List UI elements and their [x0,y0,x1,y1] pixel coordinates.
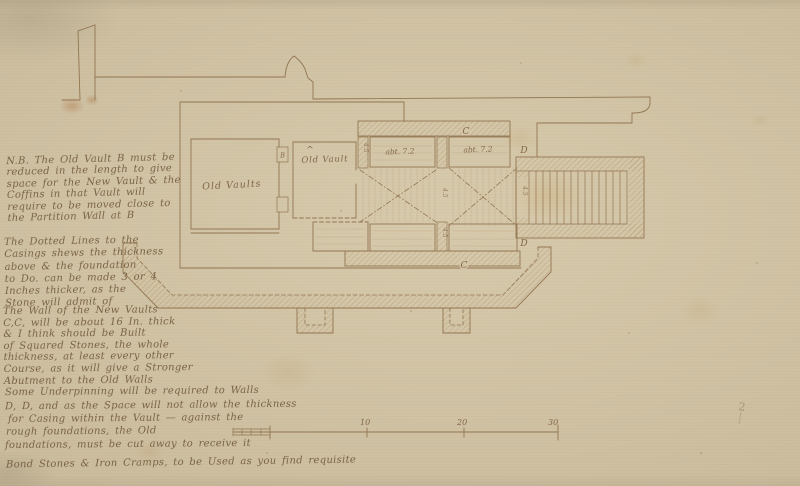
reference-letter-d-bottom: D [519,239,527,249]
note-new-wall: The Wall of the New Vaults C,C, will be … [3,304,193,387]
note-dotted-lines: The Dotted Lines to the Casings shews th… [4,234,164,311]
scale-tick-30: 30 [548,418,558,427]
scale-tick-20: 20 [456,418,467,427]
scale-bar [233,425,558,440]
note-line: Course, as it will give a Stronger [4,362,193,376]
bay-label-right: abt. 7.2 [463,144,493,154]
outer-wall-outline [62,25,650,123]
scale-tick-10: 10 [360,418,370,427]
note-nb: N.B. The Old Vault B must be reduced in … [6,152,182,225]
note-underpinning-line1: Some Underpinning will be required to Wa… [5,385,259,398]
note-underpinning-line4: rough foundations, the Old [6,425,157,437]
caret-mark: ^ [306,146,314,156]
note-underpinning-line3: for Casing within the Vault — against th… [8,412,244,425]
svg-text:2: 2 [738,400,747,414]
pencil-mark: 2 [738,400,747,424]
reference-letter-b: B [279,152,285,160]
dimension-mark-pier-center: 4.5 [441,187,448,198]
buttress-right [443,308,470,333]
new-vault-bays [316,121,520,266]
room-label-old-vaults: Old Vaults [202,178,262,192]
dimension-mark-pier-center-lower: 4.5 [441,227,448,238]
staircase-block [516,123,644,238]
stair-treads [536,171,620,224]
dimension-mark-pier-left: 4.5 [362,142,369,153]
reference-letter-d-top: D [519,146,527,156]
reference-letter-c-top: C [463,127,470,137]
dimension-mark-stair-side: 4.5 [521,185,528,196]
note-line: C,C, will be about 16 In. thick [3,316,192,330]
manuscript-plan-sheet: Old Vaults Old Vault ^ abt. 7.2 abt. 7.2… [0,0,800,486]
bay-label-left: abt. 7.2 [385,146,415,156]
reference-letter-c-bottom: C [461,261,468,271]
note-underpinning-line5: foundations, must be cut away to receive… [5,438,251,451]
buttress-left [297,308,333,333]
